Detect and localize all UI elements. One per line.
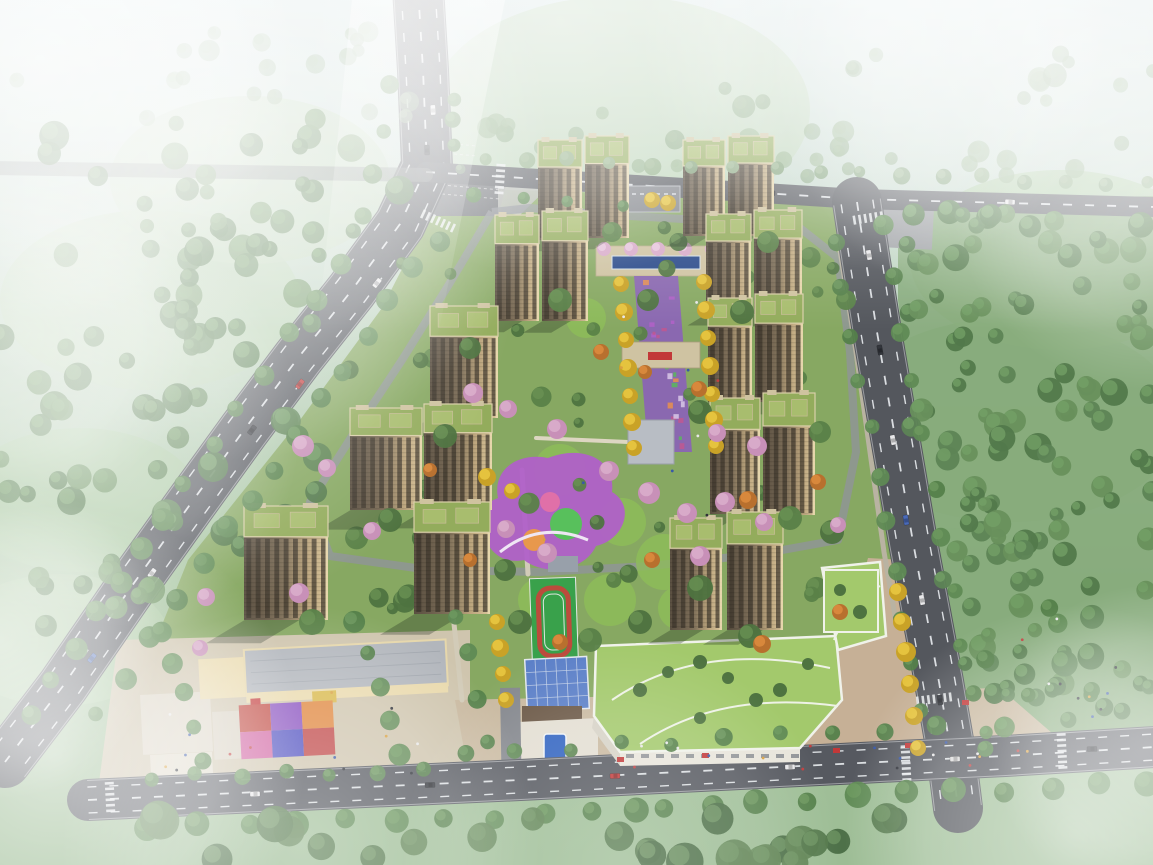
tree-highlight [520,494,532,506]
gold-tree-highlight [619,333,629,343]
tree-highlight [1039,379,1053,393]
roof-tree [834,584,846,596]
tree-highlight [953,379,961,387]
blossom-highlight [498,521,509,532]
tree-highlight [1015,541,1026,552]
tree-highlight [948,542,960,554]
tree-highlight [533,388,544,399]
tree-highlight [961,515,971,525]
tree-highlight [1057,401,1069,413]
tree-highlight [949,584,957,592]
tree-highlight [689,577,703,591]
tree-highlight [843,330,852,339]
tree-highlight [935,572,945,582]
tree-highlight [1105,493,1114,502]
promenade-tile [679,436,682,440]
blossom-highlight [749,437,761,449]
car-windshield [878,348,883,353]
tree-highlight [1012,573,1023,584]
parapet [467,499,481,504]
tree-highlight [1093,411,1105,423]
tree-highlight [991,427,1006,442]
floor-lines [763,426,815,515]
tree-highlight [961,361,970,370]
playground-pink-patch [540,492,560,512]
promenade-tile [656,335,659,338]
roof-unit [423,510,446,524]
tree-highlight [989,329,998,338]
tree-highlight [929,482,938,491]
tree-highlight [866,420,874,428]
aerial-site-rendering [0,0,1153,865]
tree-highlight [574,418,580,424]
pedestrian [543,538,546,541]
gold-tree-highlight [627,441,637,451]
promenade-tile [678,396,683,401]
tree-highlight [630,612,643,625]
pedestrian [582,481,585,484]
red-banner [648,352,672,360]
car-windshield [904,518,909,523]
roof-tree [773,683,787,697]
tree-highlight [780,508,793,521]
tree-highlight [933,529,943,539]
tree-highlight [826,726,834,734]
blossom-highlight [539,544,551,556]
tree-highlight [873,469,883,479]
tree-highlight [905,374,913,382]
autumn-highlight [639,366,647,374]
tree-highlight [979,409,987,417]
blossom-highlight [709,425,720,436]
sunlit-edge [488,532,491,614]
tree-highlight [1000,367,1010,377]
tree-highlight [1026,435,1041,450]
autumn-highlight [645,553,655,563]
tree-highlight [961,497,970,506]
roof-unit [769,401,785,416]
tree-highlight [1082,578,1092,588]
tree-highlight [580,630,593,643]
tree-highlight [1050,521,1062,533]
promenade-tile [672,383,678,387]
promenade-tile [668,403,673,409]
sunlit-edge [750,326,753,402]
tree-highlight [607,574,615,582]
car-windshield [891,438,896,443]
promenade-tile [667,373,672,379]
tree-highlight [851,375,859,383]
parapet [766,509,776,514]
roof-tree [802,658,814,670]
tree-highlight [655,522,661,528]
roof-unit [456,508,479,523]
gold-tree-highlight [898,643,910,655]
tree-highlight [937,448,950,461]
gold-tree-highlight [490,615,500,625]
tree-highlight [878,513,888,523]
gold-tree-highlight [706,412,717,423]
blossom-highlight [831,518,841,528]
red-awning [833,748,840,753]
autumn-highlight [833,605,843,615]
parapet [745,395,754,400]
blossom-highlight [756,514,767,525]
autumn-highlight [464,554,472,562]
pedestrian [671,470,674,473]
tree-highlight [805,588,813,596]
car-windshield [920,598,925,603]
tree-highlight [1051,508,1059,516]
tree-highlight [988,544,1000,556]
autumn-highlight [811,475,821,485]
gold-tree-highlight [620,360,631,371]
tree-highlight [1054,543,1067,556]
gold-tree-highlight [894,614,905,625]
tree-highlight [510,612,523,625]
blossom-highlight [692,547,704,559]
tree-highlight [811,422,823,434]
tree-highlight [1093,477,1105,489]
tree-highlight [621,566,631,576]
floor-lines [727,544,783,630]
pedestrian [809,745,812,748]
roof-unit [738,404,753,420]
pedestrian [706,514,709,517]
gold-tree-highlight [623,389,633,399]
parapet [767,390,776,395]
tree-highlight [740,626,753,639]
tree-highlight [690,402,703,415]
tree-highlight [940,432,953,445]
tree-highlight [1039,445,1049,455]
blossom-highlight [640,483,653,496]
tree-highlight [962,446,971,455]
green-roof-annex [824,570,878,632]
tree-highlight [684,389,691,396]
pedestrian [716,379,719,382]
blossom-highlight [679,504,691,516]
tree-highlight [1085,402,1094,411]
sunlit-edge [720,548,723,630]
autumn-highlight [692,382,702,392]
tree-highlight [986,512,1001,527]
rendering-canvas [0,0,1153,865]
gold-tree-highlight [702,358,713,369]
tree-highlight [1010,595,1023,608]
tree-highlight [971,488,979,496]
pedestrian [687,369,690,372]
blossom-highlight [601,462,613,474]
blossom-highlight [717,493,729,505]
tree-highlight [573,393,581,401]
roof-unit [792,400,808,416]
tree-highlight [963,599,973,609]
floor-lines [414,532,490,614]
promenade-tile [673,378,679,382]
gold-tree-highlight [505,484,515,494]
tree-highlight [1053,457,1064,468]
tree-highlight [1132,450,1142,460]
roof-tree [853,605,867,619]
tree-highlight [591,516,599,524]
autumn-highlight [740,492,751,503]
tree-highlight [912,400,925,413]
gold-tree-highlight [492,640,503,651]
tree-highlight [496,560,508,572]
gold-tree-highlight [624,414,635,425]
autumn-highlight [754,636,765,647]
parapet [731,509,741,514]
tree-highlight [979,498,987,506]
tree-highlight [461,644,471,654]
tree-highlight [399,586,412,599]
tree-highlight [388,604,394,610]
blossom-highlight [549,420,561,432]
tree-highlight [1072,502,1080,510]
autumn-highlight [594,345,604,355]
blossom-highlight [500,401,511,412]
tree-highlight [1139,529,1152,542]
tree-highlight [370,589,381,600]
tree-highlight [574,479,582,487]
tree-highlight [914,426,923,435]
promenade-tile [652,332,655,335]
gold-tree-highlight [479,469,490,480]
roof-unit [734,520,751,534]
tree-highlight [449,610,457,618]
promenade-tile [673,414,678,419]
floor-lines [755,323,803,402]
gold-tree-highlight [701,331,711,341]
roof-unit [676,526,692,540]
tree-highlight [903,418,914,429]
gold-tree-highlight [890,584,901,595]
promenade-tile [680,443,685,449]
promenade-tile [673,372,676,377]
promenade-tile [678,418,683,423]
tree-highlight [890,563,900,573]
sunlit-edge [781,544,784,630]
tree-highlight [593,562,599,568]
roof-unit [699,524,715,539]
autumn-highlight [553,635,563,645]
parapet [799,390,808,395]
pedestrian [696,434,699,437]
pedestrian [620,366,623,369]
promenade-tile [681,401,685,407]
